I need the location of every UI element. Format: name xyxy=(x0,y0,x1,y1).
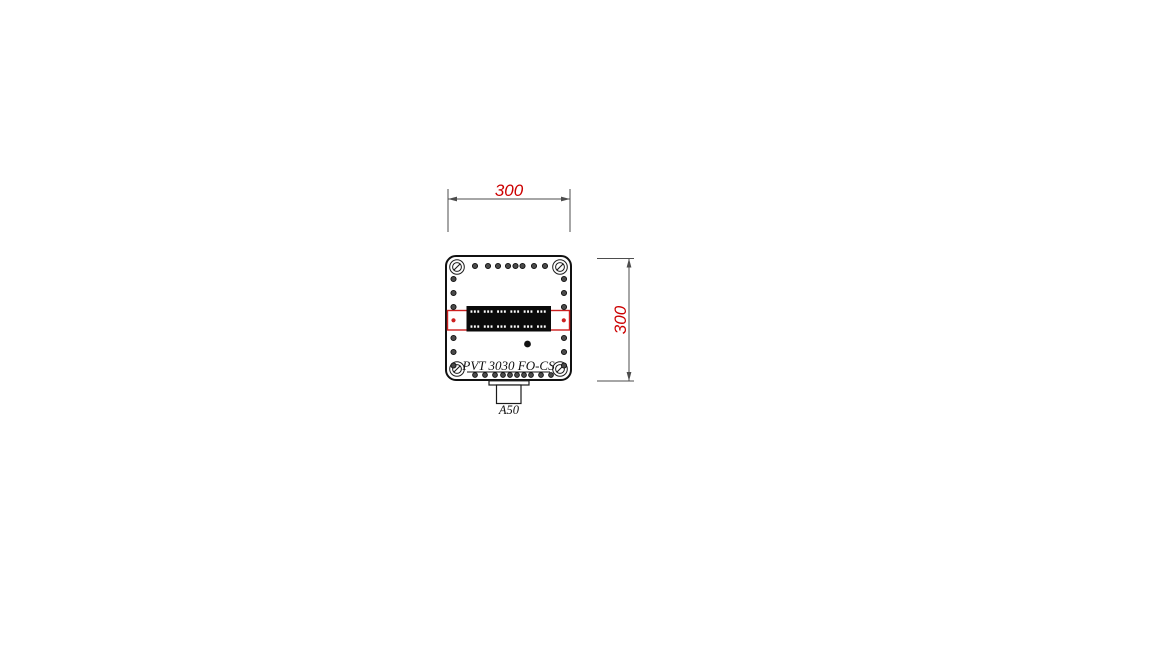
terminal-block xyxy=(467,306,552,332)
hole xyxy=(542,263,547,268)
hole xyxy=(472,263,477,268)
hole xyxy=(485,263,490,268)
height-dimension: 300 xyxy=(597,259,634,382)
hole xyxy=(493,373,498,378)
product-label: PVT 3030 FO-CS xyxy=(461,358,555,373)
hole xyxy=(483,373,488,378)
hole xyxy=(539,373,544,378)
hole xyxy=(561,363,566,368)
hole xyxy=(451,335,456,340)
hole xyxy=(508,373,513,378)
hole xyxy=(561,335,566,340)
hole xyxy=(561,276,566,281)
cable-gland-body xyxy=(497,385,522,404)
hole xyxy=(495,263,500,268)
hole xyxy=(561,290,566,295)
hole xyxy=(529,373,534,378)
hole xyxy=(515,373,520,378)
hole xyxy=(451,290,456,295)
hole xyxy=(522,373,527,378)
hole xyxy=(451,304,456,309)
hole xyxy=(549,373,554,378)
hole xyxy=(561,304,566,309)
indicator-dot xyxy=(524,341,531,348)
cable-gland-flange xyxy=(489,381,529,385)
width-dimension-text: 300 xyxy=(495,181,524,200)
height-dimension-text: 300 xyxy=(611,305,630,334)
hole xyxy=(520,263,525,268)
cable-gland: A50 xyxy=(489,381,529,417)
connector-label: A50 xyxy=(498,403,520,417)
hole xyxy=(561,349,566,354)
hole xyxy=(473,373,478,378)
hole xyxy=(451,363,456,368)
drawing-canvas: 300 300 xyxy=(0,0,1152,648)
arrowhead-right xyxy=(561,197,570,202)
hole xyxy=(451,349,456,354)
hole xyxy=(513,263,518,268)
rail-marker-left xyxy=(451,318,455,322)
hole xyxy=(531,263,536,268)
enclosure-body: PVT 3030 FO-CS xyxy=(446,256,571,380)
hole xyxy=(501,373,506,378)
arrowhead-left xyxy=(448,197,457,202)
arrowhead-bottom xyxy=(627,372,632,381)
hole xyxy=(451,276,456,281)
technical-drawing: 300 300 xyxy=(0,0,1152,648)
hole xyxy=(505,263,510,268)
width-dimension: 300 xyxy=(448,181,570,232)
rail-marker-right xyxy=(562,318,566,322)
arrowhead-top xyxy=(627,259,632,268)
